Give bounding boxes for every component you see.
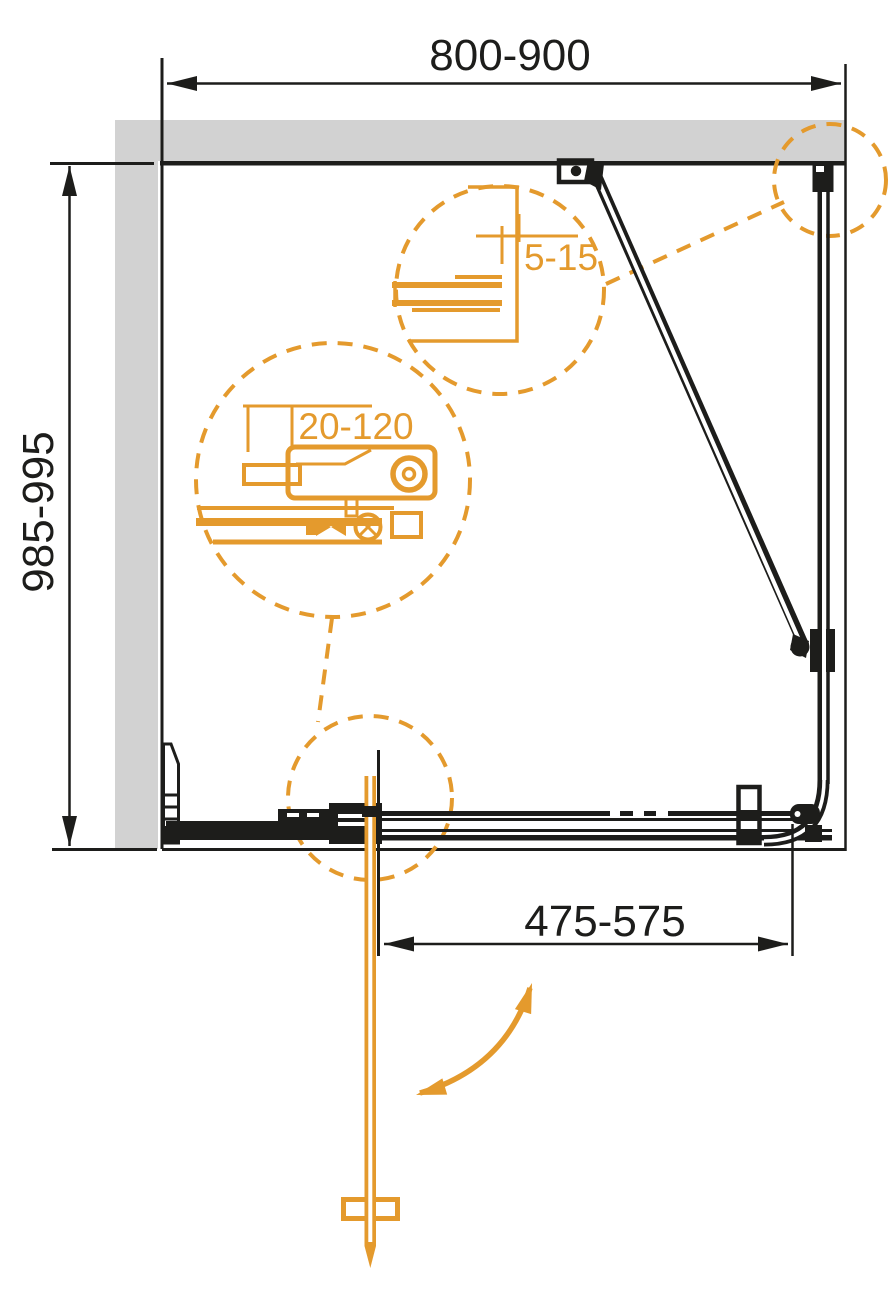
dim-arrow-bottom bbox=[62, 816, 77, 846]
door-glass-closed-gap bbox=[368, 776, 372, 1242]
pivot-clamp-slot bbox=[338, 822, 367, 826]
detail-wall-profile: 5-15 bbox=[392, 187, 598, 341]
profile-adjust-label: 20-120 bbox=[298, 406, 413, 447]
panel-wall-mount-notch bbox=[816, 166, 824, 172]
door-panel-open bbox=[559, 161, 835, 673]
swing-arrowhead-upper bbox=[515, 980, 540, 1014]
door-offset-dimension-label: 475-575 bbox=[524, 897, 685, 946]
swing-arc bbox=[420, 988, 530, 1093]
profile-arm bbox=[244, 465, 300, 484]
rail-break bbox=[633, 810, 644, 817]
enclosure-frame bbox=[52, 58, 846, 851]
dimension-top: 800-900 bbox=[167, 31, 841, 91]
detail-adjustable-profile: 20-120 bbox=[196, 406, 435, 542]
rail-break bbox=[656, 810, 668, 817]
rail-break bbox=[610, 810, 620, 817]
left-wall bbox=[115, 120, 158, 849]
width-dimension-label: 800-900 bbox=[429, 31, 590, 80]
bottom-rail-assembly bbox=[164, 744, 833, 844]
callout-leader-pivot bbox=[318, 618, 332, 722]
top-hinge-pin bbox=[571, 166, 582, 177]
callout-leader-top-right bbox=[606, 202, 784, 284]
shower-enclosure-plan-diagram: 5-15 20-120 bbox=[0, 0, 894, 1300]
pivot-clamp-over-door bbox=[362, 806, 379, 817]
rail-line bbox=[382, 811, 794, 816]
dim-arrow-right bbox=[758, 937, 788, 952]
rail-clamp-band bbox=[737, 810, 762, 821]
fixed-panel-right bbox=[764, 162, 834, 847]
dim-arrow-left bbox=[384, 937, 414, 952]
dim-arrow-left bbox=[167, 76, 197, 91]
roller-axle bbox=[404, 469, 415, 480]
top-wall bbox=[115, 120, 846, 161]
rail-clamp-band bbox=[737, 829, 762, 841]
rail-line bbox=[382, 818, 794, 821]
wall-bracket-foot bbox=[164, 826, 179, 843]
door-swing-arrow bbox=[414, 980, 541, 1103]
rail-stub-slot bbox=[287, 813, 299, 817]
end-block bbox=[392, 513, 421, 537]
diagram-canvas: 5-15 20-120 bbox=[0, 0, 894, 1300]
callout-circle-wall-gap bbox=[396, 186, 604, 394]
dim-arrow-top bbox=[62, 166, 77, 196]
door-glass-open-gap bbox=[597, 176, 801, 642]
callout-circle-profile-adjust bbox=[196, 343, 470, 617]
wall-gap-label: 5-15 bbox=[524, 237, 598, 278]
roller-wheel bbox=[393, 458, 425, 490]
rail-line bbox=[382, 829, 832, 832]
dimension-bottom: 475-575 bbox=[379, 750, 793, 956]
swing-arrowhead-lower bbox=[414, 1078, 448, 1103]
profile-body-step bbox=[296, 450, 371, 464]
depth-dimension-label: 985-995 bbox=[14, 431, 63, 592]
rail-bar bbox=[166, 821, 345, 840]
door-catch-pin bbox=[795, 811, 801, 817]
dim-arrow-right bbox=[811, 76, 841, 91]
rail-stub bbox=[278, 809, 332, 822]
rail-stub-slot bbox=[307, 813, 319, 817]
corner-foot-block bbox=[805, 825, 822, 842]
door-glass-tip bbox=[365, 1246, 377, 1268]
